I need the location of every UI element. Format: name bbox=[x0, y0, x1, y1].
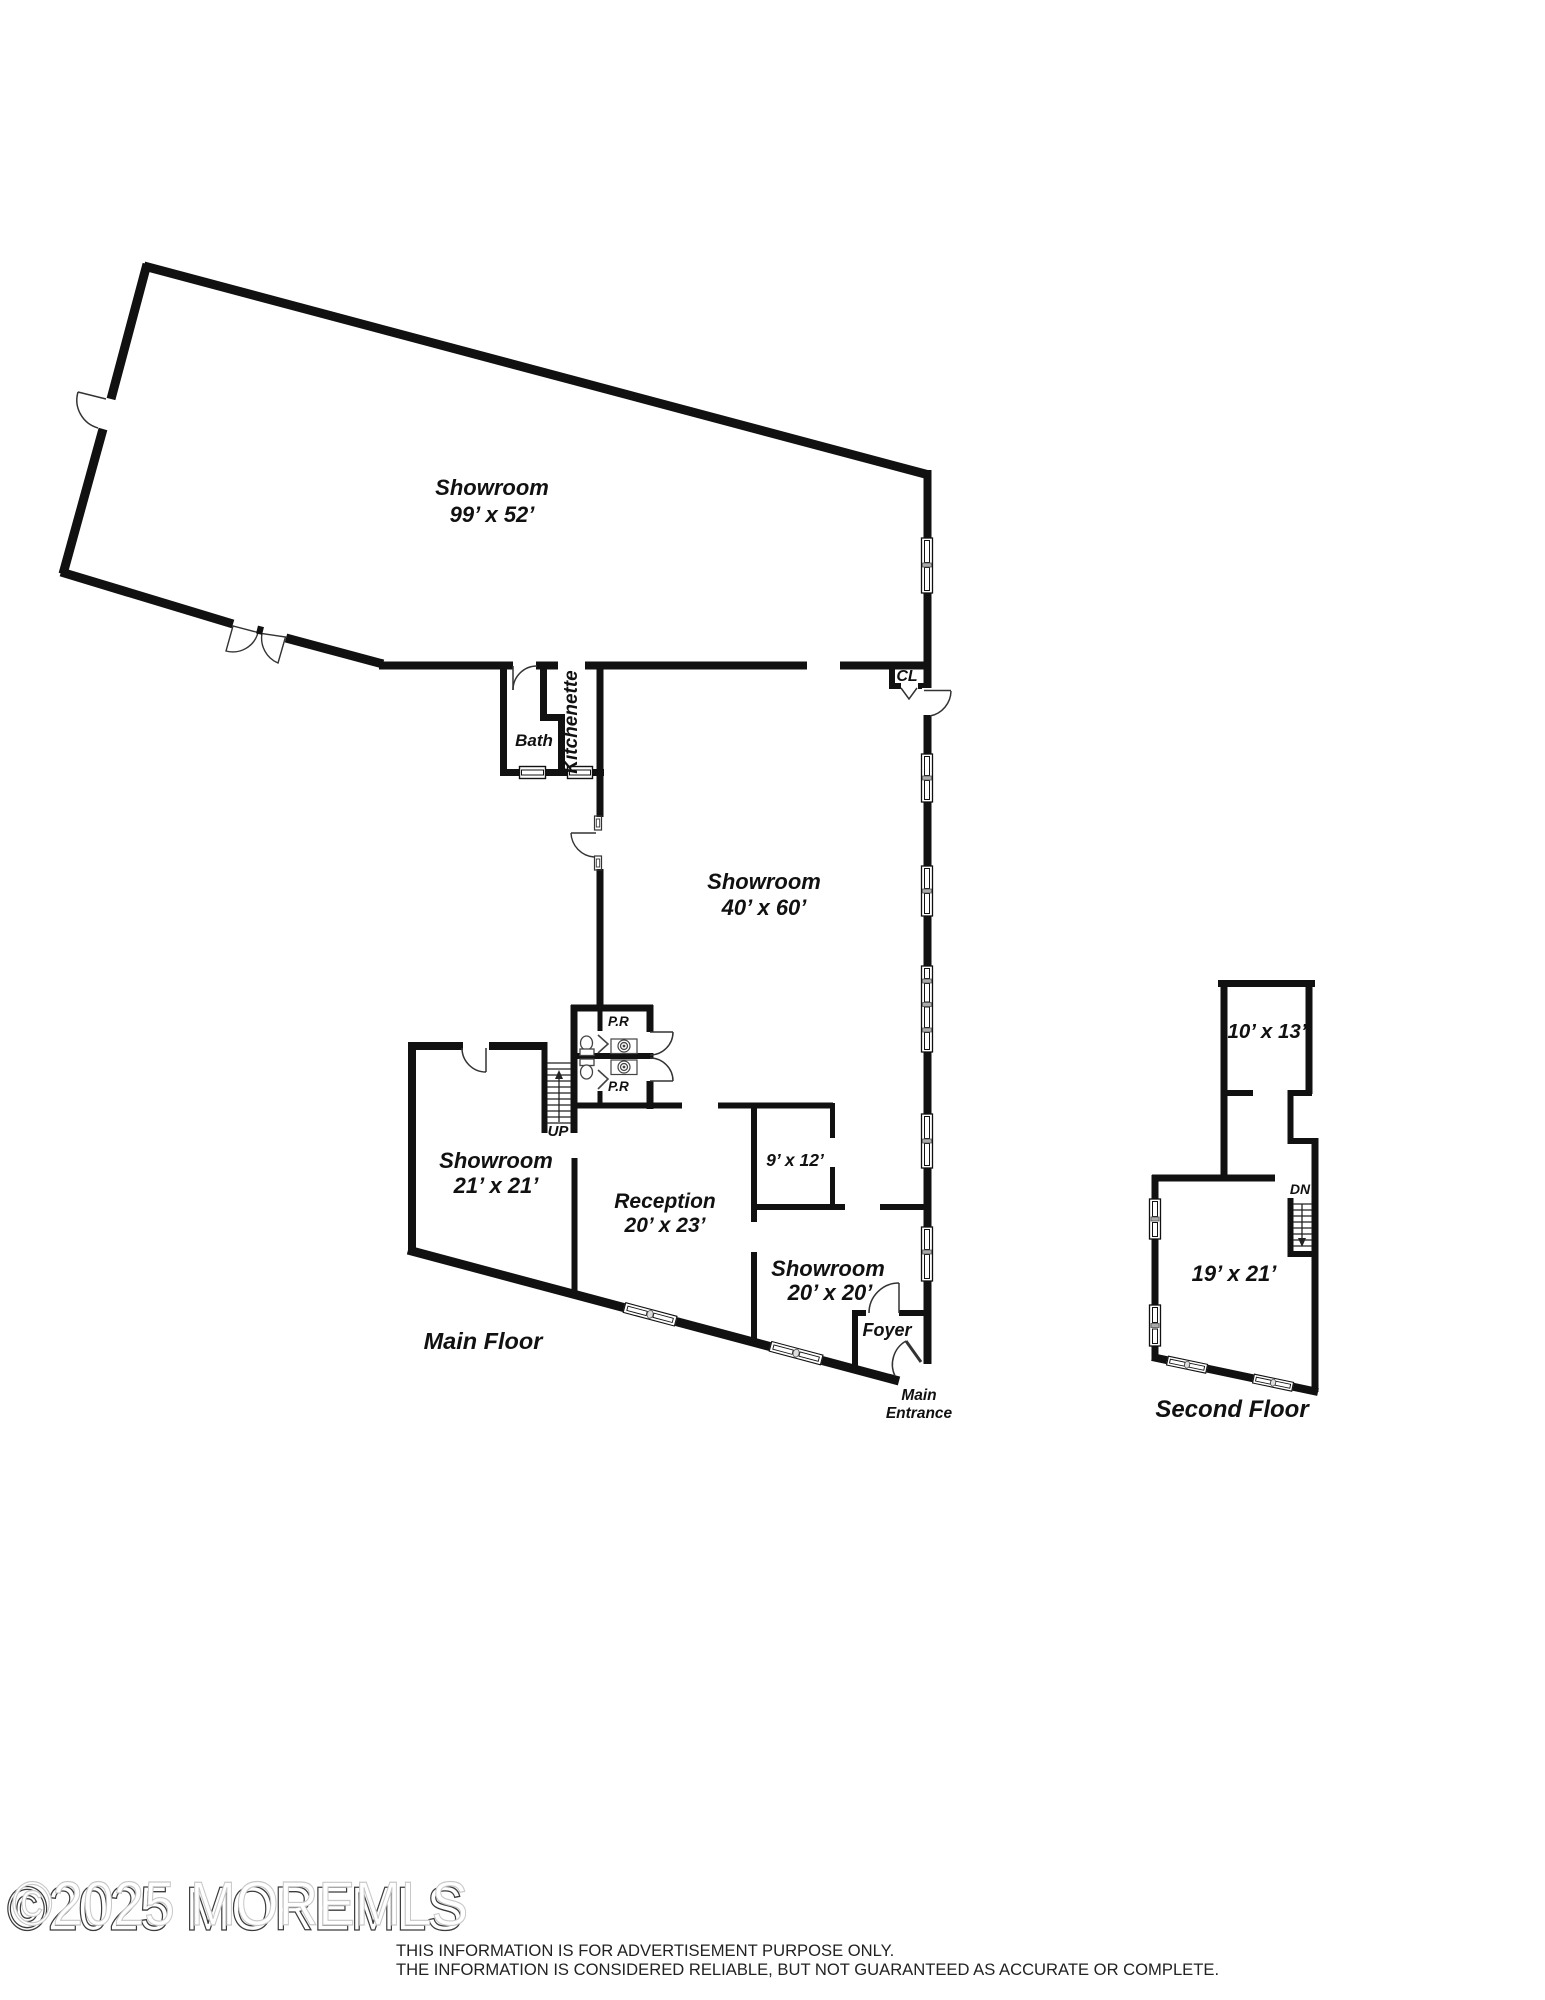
svg-text:P.R: P.R bbox=[608, 1079, 629, 1094]
svg-text:10’ x 13’: 10’ x 13’ bbox=[1227, 1020, 1306, 1043]
svg-text:19’ x 21’: 19’ x 21’ bbox=[1192, 1261, 1278, 1286]
svg-text:Showroom: Showroom bbox=[435, 475, 549, 500]
svg-text:Foyer: Foyer bbox=[862, 1320, 912, 1340]
svg-text:Entrance: Entrance bbox=[886, 1405, 953, 1422]
svg-text:Showroom: Showroom bbox=[439, 1148, 553, 1173]
svg-text:UP: UP bbox=[548, 1123, 570, 1140]
svg-text:Showroom: Showroom bbox=[771, 1256, 885, 1281]
svg-text:P.R: P.R bbox=[608, 1014, 629, 1029]
svg-text:Kitchenette: Kitchenette bbox=[561, 670, 582, 774]
svg-text:99’ x 52’: 99’ x 52’ bbox=[450, 502, 536, 527]
svg-text:THE INFORMATION IS CONSIDERED: THE INFORMATION IS CONSIDERED RELIABLE, … bbox=[396, 1960, 1219, 1979]
svg-text:Main: Main bbox=[901, 1387, 936, 1404]
svg-text:THIS INFORMATION IS FOR ADVERT: THIS INFORMATION IS FOR ADVERTISEMENT PU… bbox=[396, 1941, 894, 1960]
svg-text:Main Floor: Main Floor bbox=[424, 1328, 545, 1354]
svg-text:9’ x 12’: 9’ x 12’ bbox=[766, 1150, 825, 1170]
svg-text:©2025 MOREMLS: ©2025 MOREMLS bbox=[12, 1870, 468, 1939]
svg-text:21’ x 21’: 21’ x 21’ bbox=[453, 1173, 540, 1198]
svg-text:Reception: Reception bbox=[614, 1190, 716, 1213]
svg-text:CL: CL bbox=[896, 668, 917, 685]
svg-text:20’ x 20’: 20’ x 20’ bbox=[787, 1280, 874, 1305]
svg-text:40’ x 60’: 40’ x 60’ bbox=[721, 895, 808, 920]
svg-text:Bath: Bath bbox=[515, 731, 553, 750]
svg-text:DN: DN bbox=[1290, 1181, 1311, 1197]
svg-text:20’ x 23’: 20’ x 23’ bbox=[624, 1214, 707, 1237]
svg-text:Second Floor: Second Floor bbox=[1155, 1396, 1310, 1423]
svg-text:Showroom: Showroom bbox=[707, 869, 821, 894]
